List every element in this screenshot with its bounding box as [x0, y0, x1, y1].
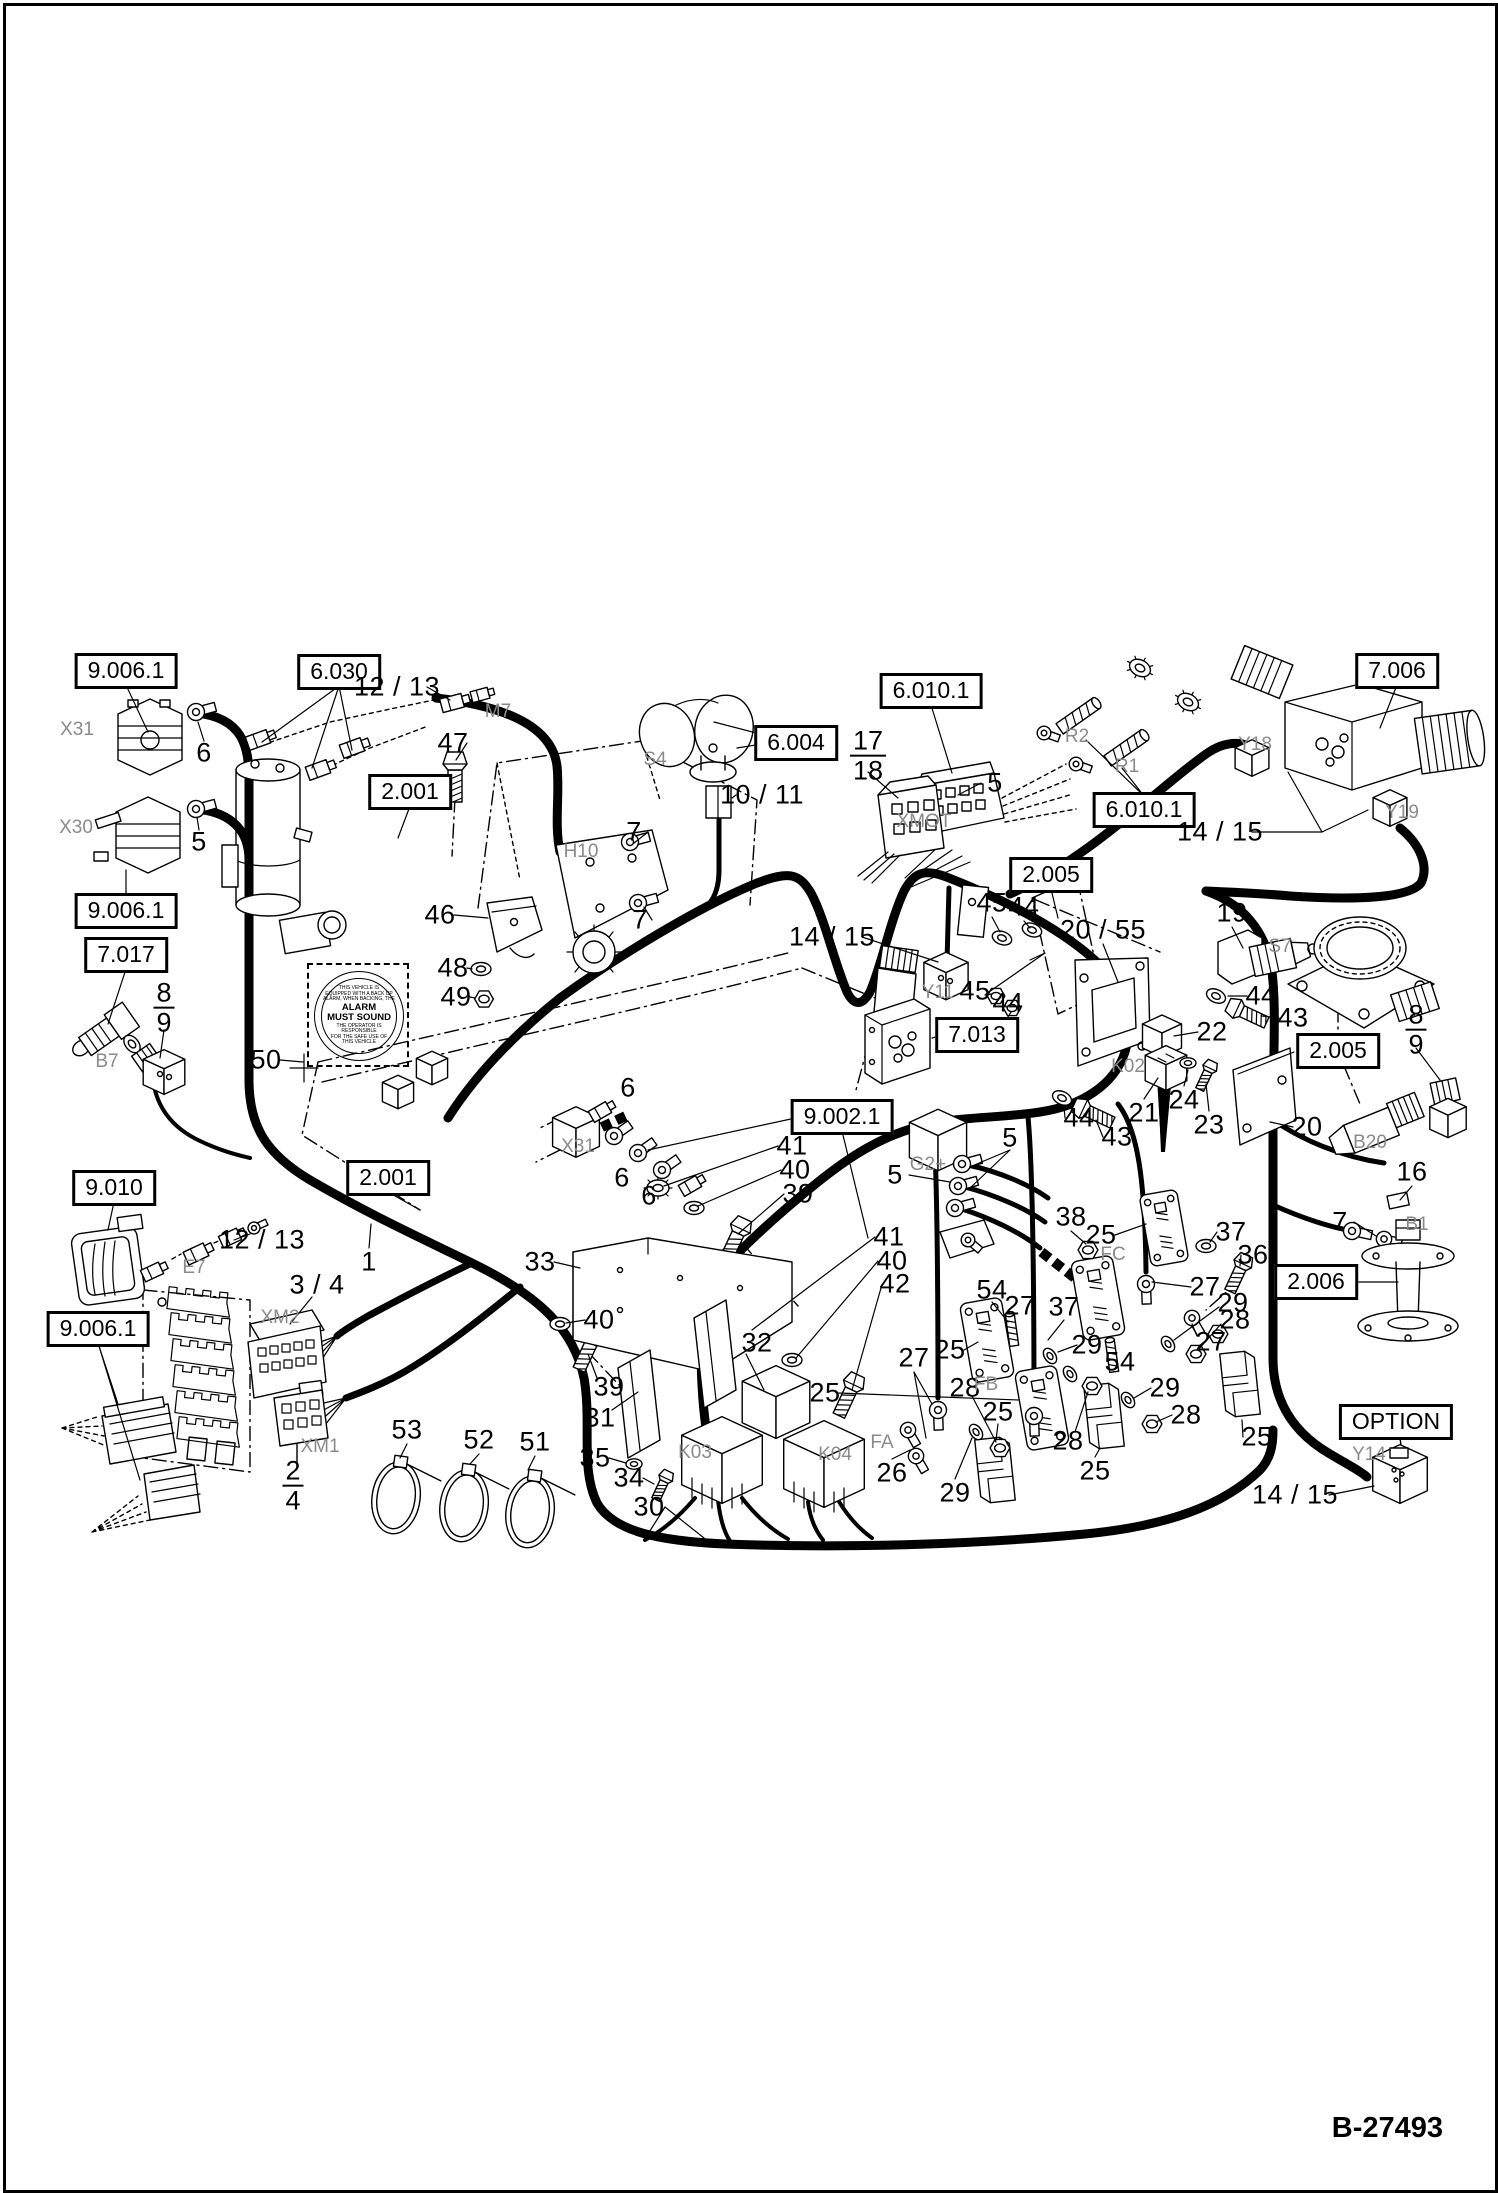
- callout-44-14: 44: [1008, 892, 1039, 923]
- fraction-bottom: 18: [850, 757, 886, 785]
- diagram-page: 9.006.16.0302.0016.0046.010.17.0066.010.…: [0, 0, 1498, 2193]
- callout-40-49: 40: [583, 1305, 614, 1336]
- callout-20-27: 20: [1291, 1112, 1322, 1143]
- callout-14-15-30: 14 / 15: [1177, 817, 1263, 848]
- callout-6-43: 6: [641, 1181, 657, 1212]
- callout-5-11: 5: [987, 768, 1003, 799]
- callout-54-62: 54: [976, 1275, 1007, 1306]
- callout-5-1: 5: [191, 827, 207, 858]
- callout-25-61: 25: [934, 1335, 965, 1366]
- component-id-fb-23: FB: [974, 1374, 998, 1396]
- ref-label-7-006-5: 7.006: [1355, 653, 1439, 689]
- callout-26-57: 26: [876, 1458, 907, 1489]
- callout-31-51: 31: [584, 1403, 615, 1434]
- callout-25-56: 25: [809, 1378, 840, 1409]
- callout-7-8: 7: [626, 817, 642, 848]
- fraction-top: 2: [282, 1457, 303, 1487]
- callout-6-41: 6: [620, 1073, 636, 1104]
- callout-16-28: 16: [1396, 1157, 1427, 1188]
- callout-12-13-31: 12 / 13: [219, 1225, 305, 1256]
- callout-fraction-17-18-0: 1718: [850, 727, 886, 786]
- callout-6-42: 6: [614, 1163, 630, 1194]
- callout-28-68: 28: [1052, 1426, 1083, 1457]
- component-id-k03-20: K03: [678, 1442, 712, 1464]
- component-id-k04-21: K04: [818, 1444, 852, 1466]
- ref-label-2-005-11: 2.005: [1296, 1033, 1380, 1069]
- fraction-bottom: 9: [153, 1009, 174, 1037]
- callout-7-29: 7: [1332, 1207, 1348, 1238]
- callout-29-66: 29: [1071, 1330, 1102, 1361]
- component-id-x31-0: X31: [60, 719, 94, 741]
- component-id-m7-2: M7: [485, 701, 511, 723]
- figure-code: B-27493: [1332, 2112, 1443, 2145]
- component-id-xmot-5: XMOT: [897, 811, 952, 833]
- component-id-xm1-19: XM1: [300, 1436, 339, 1458]
- component-id-fc-24: FC: [1100, 1244, 1125, 1266]
- callout-14-15-12: 14 / 15: [789, 922, 875, 953]
- callout-fraction-2-4-3: 24: [282, 1457, 303, 1516]
- callout-44-17: 44: [1245, 981, 1276, 1012]
- component-id-y18-8: Y18: [1238, 734, 1272, 756]
- alarm-decal: THIS VEHICLE IS EQUIPPED WITH A BACK UP …: [307, 963, 409, 1067]
- callout-21-24: 21: [1128, 1098, 1159, 1129]
- callout-43-26: 43: [1101, 1122, 1132, 1153]
- component-id-y14-26: Y14: [1352, 1444, 1386, 1466]
- callout-23-23: 23: [1193, 1110, 1224, 1141]
- callout-25-80: 25: [1241, 1422, 1272, 1453]
- callout-12-13-2: 12 / 13: [354, 672, 440, 703]
- callout-53-34: 53: [391, 1415, 422, 1446]
- component-id-g2-16: G2+: [910, 1154, 946, 1176]
- callout-30-55: 30: [633, 1492, 664, 1523]
- callout-42-48: 42: [879, 1269, 910, 1300]
- callout-14-15-81: 14 / 15: [1252, 1480, 1338, 1511]
- callout-51-36: 51: [519, 1427, 550, 1458]
- ref-label-2-001-14: 2.001: [346, 1160, 430, 1196]
- callout-45-15: 45: [959, 976, 990, 1007]
- fraction-bottom: 4: [282, 1487, 303, 1515]
- callout-43-18: 43: [1277, 1003, 1308, 1034]
- callout-20-55-19: 20 / 55: [1060, 915, 1146, 946]
- ref-label-option-17: OPTION: [1339, 1404, 1453, 1440]
- callout-29-59: 29: [939, 1478, 970, 1509]
- callout-27-64: 27: [1004, 1291, 1035, 1322]
- ref-label-9-010-13: 9.010: [72, 1170, 156, 1206]
- component-id-fa-22: FA: [870, 1432, 893, 1454]
- callout-28-79: 28: [1170, 1400, 1201, 1431]
- fraction-bottom: 9: [1405, 1031, 1426, 1059]
- fraction-top: 17: [850, 727, 886, 757]
- callout-36-73: 36: [1237, 1240, 1268, 1271]
- callout-fraction-8-9-1: 89: [153, 979, 174, 1038]
- callout-22-21: 22: [1196, 1017, 1227, 1048]
- ref-label-9-006-1-8: 9.006.1: [75, 893, 178, 929]
- callout-10-11-10: 10 / 11: [720, 780, 804, 811]
- component-id-s4-3: S4: [643, 749, 666, 771]
- ref-label-9-006-1-0: 9.006.1: [75, 653, 178, 689]
- callout-39-50: 39: [593, 1372, 624, 1403]
- callout-1-32: 1: [361, 1247, 377, 1278]
- component-id-xm2-18: XM2: [260, 1307, 299, 1329]
- component-id-k02-13: K02: [1111, 1056, 1145, 1078]
- callout-25-63: 25: [982, 1397, 1013, 1428]
- callout-5-45: 5: [1002, 1123, 1018, 1154]
- component-id-x30-1: X30: [59, 817, 93, 839]
- callout-6-0: 6: [196, 738, 212, 769]
- ref-label-9-006-1-15: 9.006.1: [47, 1311, 150, 1347]
- component-id-s7-12: S7: [1268, 936, 1291, 958]
- callout-27-77: 27: [1195, 1327, 1226, 1358]
- component-id-b20-14: B20: [1353, 1132, 1387, 1154]
- fraction-top: 8: [1405, 1001, 1426, 1031]
- callout-52-35: 52: [463, 1425, 494, 1456]
- component-id-h10-4: H10: [564, 841, 599, 863]
- ref-label-2-006-16: 2.006: [1274, 1264, 1358, 1300]
- callout-44-16: 44: [992, 988, 1023, 1019]
- component-id-b1-25: B1: [1405, 1214, 1428, 1236]
- callout-37-65: 37: [1048, 1292, 1079, 1323]
- callout-50-7: 50: [250, 1045, 281, 1076]
- component-id-y11-11: Y11: [922, 982, 954, 1004]
- callout-32-52: 32: [741, 1328, 772, 1359]
- ref-label-6-010-1-4: 6.010.1: [880, 673, 983, 709]
- callout-5-44: 5: [887, 1160, 903, 1191]
- ref-label-2-005-7: 2.005: [1009, 857, 1093, 893]
- callout-47-3: 47: [437, 728, 468, 759]
- fraction-top: 8: [153, 979, 174, 1009]
- component-id-r2-6: R2: [1065, 726, 1089, 748]
- callout-25-69: 25: [1079, 1456, 1110, 1487]
- callout-19-20: 19: [1216, 898, 1247, 929]
- callout-49-6: 49: [440, 982, 471, 1013]
- ref-label-7-013-10: 7.013: [935, 1017, 1019, 1053]
- ref-label-6-004-3: 6.004: [754, 725, 838, 761]
- component-id-r1-7: R1: [1115, 756, 1139, 778]
- component-id-y19-9: Y19: [1385, 802, 1419, 824]
- component-id-e7-17: E7: [182, 1257, 205, 1279]
- callout-38-70: 38: [1055, 1202, 1086, 1233]
- callout-34-54: 34: [613, 1463, 644, 1494]
- callout-44-25: 44: [1063, 1103, 1094, 1134]
- decal-line6: THIS VEHICLE: [342, 1040, 376, 1046]
- component-id-b7-10: B7: [95, 1051, 118, 1073]
- ref-label-2-001-2: 2.001: [368, 774, 452, 810]
- callout-7-9: 7: [632, 905, 648, 936]
- ref-label-7-017-9: 7.017: [84, 937, 168, 973]
- callout-27-58: 27: [898, 1343, 929, 1374]
- callout-45-13: 45: [976, 888, 1007, 919]
- callout-54-67: 54: [1104, 1347, 1135, 1378]
- callout-33-37: 33: [524, 1247, 555, 1278]
- component-id-x31-15: X31: [561, 1136, 595, 1158]
- callout-35-53: 35: [579, 1443, 610, 1474]
- callout-27-74: 27: [1189, 1272, 1220, 1303]
- callout-46-4: 46: [424, 900, 455, 931]
- alarm-decal-circle: THIS VEHICLE IS EQUIPPED WITH A BACK UP …: [314, 971, 404, 1061]
- callout-48-5: 48: [437, 953, 468, 984]
- callout-39-40: 39: [782, 1179, 813, 1210]
- callout-3-4-33: 3 / 4: [289, 1270, 344, 1301]
- callout-fraction-8-9-2: 89: [1405, 1001, 1426, 1060]
- labels-layer: 9.006.16.0302.0016.0046.010.17.0066.010.…: [0, 0, 1498, 2193]
